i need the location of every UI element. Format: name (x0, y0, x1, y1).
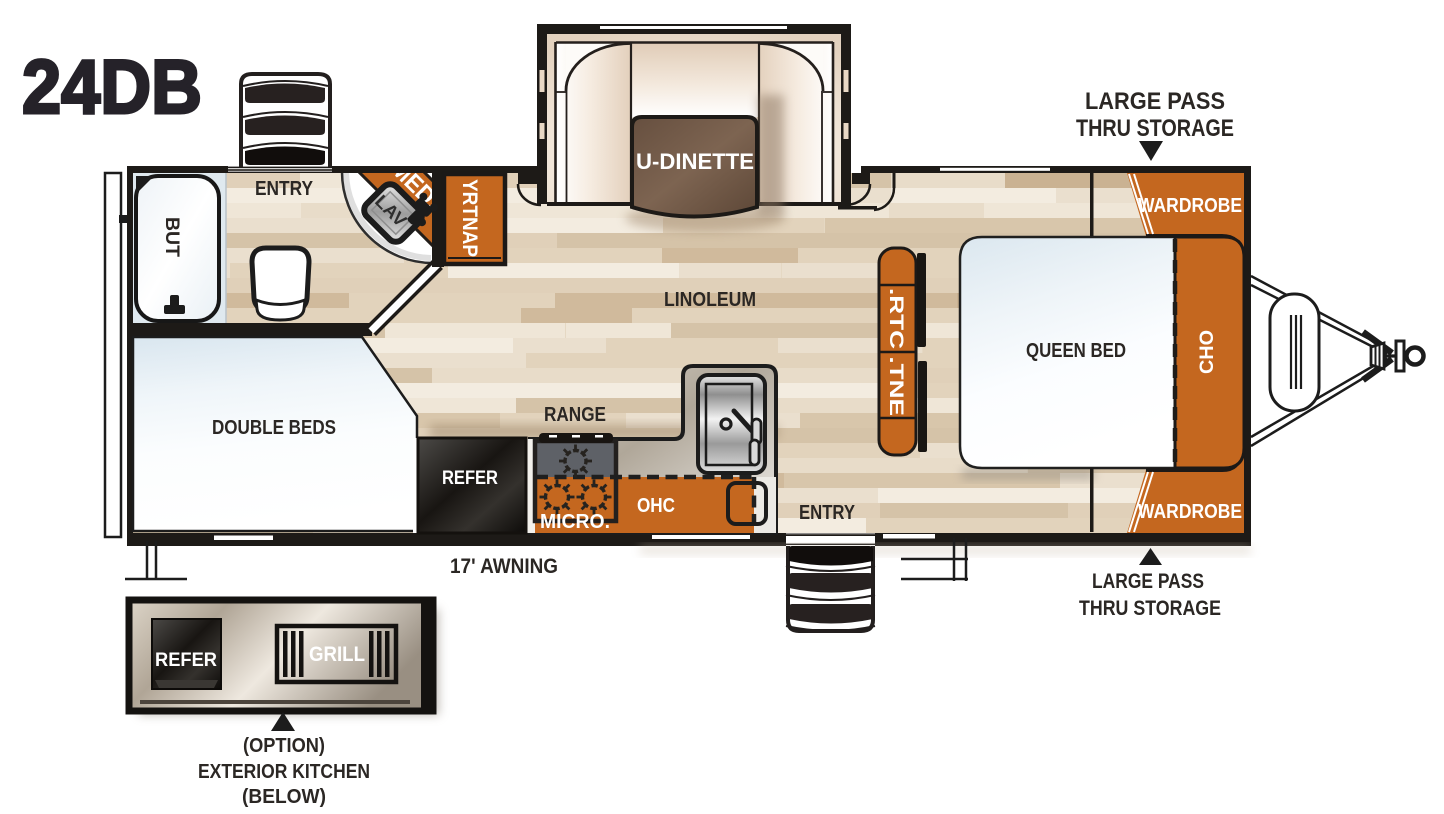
svg-text:24DB: 24DB (22, 45, 202, 130)
svg-text:DOUBLE BEDS: DOUBLE BEDS (212, 417, 336, 439)
svg-text:REFER: REFER (155, 650, 217, 671)
svg-text:REFER: REFER (442, 468, 498, 489)
svg-text:CHO: CHO (1197, 330, 1218, 374)
svg-text:THRU STORAGE: THRU STORAGE (1076, 115, 1234, 142)
svg-text:U-DINETTE: U-DINETTE (636, 149, 754, 174)
svg-text:.RTC .TNE: .RTC .TNE (885, 288, 906, 416)
svg-text:WARDROBE: WARDROBE (1138, 501, 1242, 523)
svg-text:ENTRY: ENTRY (799, 502, 856, 524)
svg-text:OHC: OHC (637, 495, 675, 517)
svg-text:EXTERIOR KITCHEN: EXTERIOR KITCHEN (198, 761, 370, 783)
svg-text:17' AWNING: 17' AWNING (450, 555, 558, 578)
svg-text:(BELOW): (BELOW) (242, 786, 326, 808)
svg-text:QUEEN BED: QUEEN BED (1026, 340, 1126, 362)
svg-text:(OPTION): (OPTION) (243, 735, 325, 757)
svg-text:RANGE: RANGE (544, 404, 606, 426)
svg-text:BUT: BUT (161, 217, 182, 257)
svg-text:YRTNAP: YRTNAP (458, 179, 481, 257)
svg-text:MICRO.: MICRO. (540, 511, 610, 533)
svg-text:ENTRY: ENTRY (255, 178, 314, 200)
svg-text:GRILL: GRILL (309, 643, 365, 666)
svg-text:LARGE PASS: LARGE PASS (1092, 570, 1204, 593)
svg-text:LARGE PASS: LARGE PASS (1085, 88, 1225, 115)
svg-text:THRU STORAGE: THRU STORAGE (1079, 597, 1221, 620)
svg-text:LINOLEUM: LINOLEUM (664, 289, 756, 311)
svg-text:WARDROBE: WARDROBE (1138, 195, 1242, 217)
